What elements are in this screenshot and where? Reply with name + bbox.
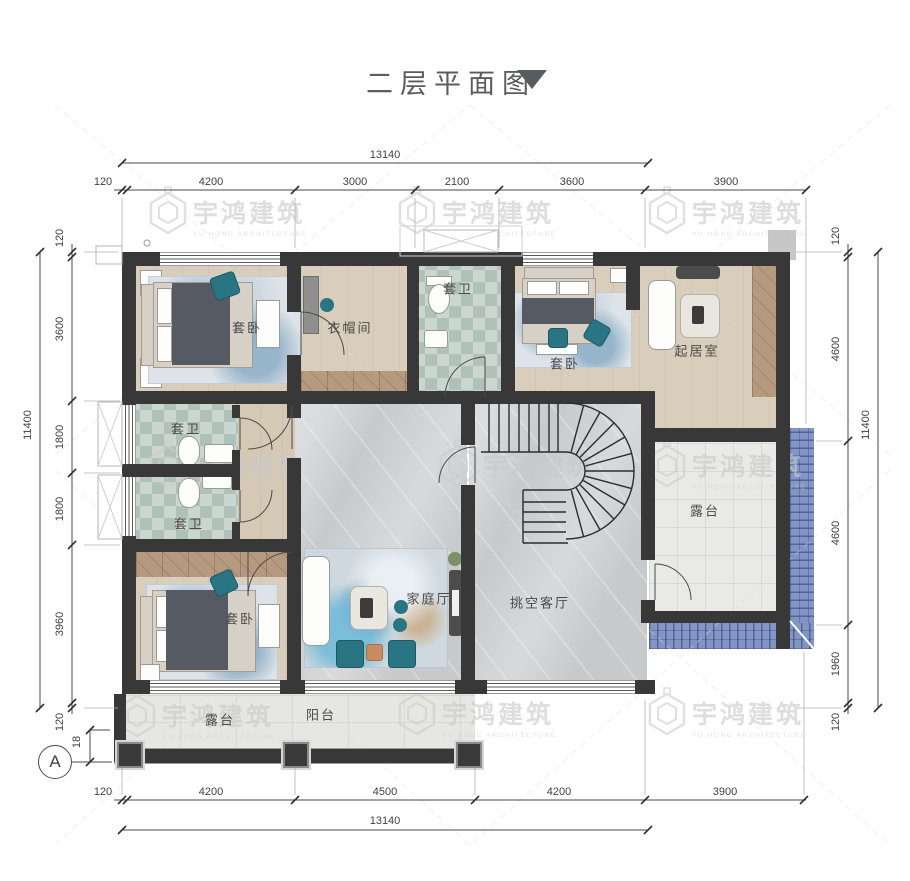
dim-top-seg: 120 [94,176,112,188]
dim-left-seg: 120 [54,229,66,247]
dim-top-seg: 3900 [714,176,738,188]
dim-offset-18: 18 [71,736,83,748]
dim-top-seg: 3000 [343,176,367,188]
title-triangle-icon [517,70,547,89]
dim-left-seg: 3960 [54,612,66,636]
floor-plan-canvas: 二层平面图 [0,0,910,881]
dim-top-seg: 2100 [445,176,469,188]
dim-top-seg: 3600 [560,176,584,188]
dim-left-seg: 120 [54,713,66,731]
dim-left-seg: 1800 [54,425,66,449]
dim-right-seg: 120 [830,713,842,731]
dimension-lines [40,163,878,830]
grid-bubble-label: A [49,752,60,772]
dim-bottom-seg: 4500 [373,786,397,798]
dim-bottom-total: 13140 [370,815,401,827]
dim-right-total: 11400 [860,410,872,440]
dim-left-seg: 3600 [54,317,66,341]
dimension-layer [0,0,910,881]
dimension-ticks [36,159,882,834]
dim-right-seg: 4600 [830,337,842,361]
dim-left-total: 11400 [22,410,34,440]
dim-bottom-seg: 4200 [199,786,223,798]
dim-top-total: 13140 [370,149,401,161]
dim-bottom-seg: 4200 [547,786,571,798]
dim-bottom-seg: 120 [94,786,112,798]
dim-right-seg: 1960 [830,652,842,676]
extension-lines [84,198,842,795]
page-title: 二层平面图 [366,62,536,101]
grid-bubble-a: A [38,745,72,779]
dim-top-seg: 4200 [199,176,223,188]
dim-right-seg: 4600 [830,521,842,545]
dim-left-seg: 1800 [54,497,66,521]
dim-right-seg: 120 [830,227,842,245]
dim-bottom-seg: 3900 [713,786,737,798]
